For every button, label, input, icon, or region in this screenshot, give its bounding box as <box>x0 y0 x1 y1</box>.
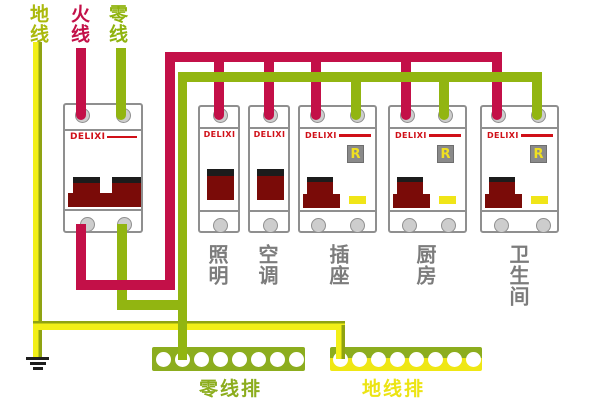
live-wire-in <box>76 48 86 120</box>
divider <box>65 129 141 131</box>
label-aircon: 空调 <box>256 244 277 286</box>
live-drop-lighting <box>214 62 224 120</box>
wiring-diagram: 地线 火线 零线 DELIXI <box>0 0 600 400</box>
neutral-busbar-label: 零线排 <box>199 374 262 400</box>
brand-text: DELIXI <box>305 131 337 140</box>
status-indicator <box>439 196 456 204</box>
brand-text: DELIXI <box>204 130 236 139</box>
rcd-badge: R <box>347 145 364 163</box>
rcd-badge: R <box>437 145 454 163</box>
ground-wire-vertical <box>33 42 42 357</box>
terminal-bottom-left <box>311 218 326 233</box>
brand-underline <box>521 134 553 137</box>
busbar-hole <box>251 352 266 367</box>
terminal-bottom-right <box>536 218 551 233</box>
busbar-hole <box>194 352 209 367</box>
divider <box>482 210 557 212</box>
busbar-hole <box>390 352 405 367</box>
brand-text: DELIXI <box>395 131 427 140</box>
neutral-wire-out-down <box>117 224 127 308</box>
terminal-bottom <box>213 218 228 233</box>
breaker-aircon[interactable]: DELIXI <box>248 105 290 233</box>
label-lighting: 照明 <box>206 244 227 286</box>
live-drop-bathroom <box>492 52 502 120</box>
label-kitchen: 厨房 <box>414 244 435 286</box>
toggle-upper[interactable] <box>307 182 333 194</box>
earth-symbol-line3 <box>33 367 43 370</box>
toggle-cap <box>257 169 284 176</box>
busbar-hole <box>232 352 247 367</box>
terminal-bottom <box>263 218 278 233</box>
live-wire-out-right <box>76 280 175 290</box>
busbar-hole <box>466 352 481 367</box>
divider <box>300 210 375 212</box>
busbar-hole <box>270 352 285 367</box>
divider <box>200 210 238 212</box>
neutral-drop-bathroom <box>532 72 542 120</box>
brand-underline <box>429 134 461 137</box>
live-wire-riser <box>165 52 175 290</box>
busbar-hole <box>352 352 367 367</box>
busbar-hole <box>156 352 171 367</box>
status-indicator <box>349 196 366 204</box>
busbar-hole <box>213 352 228 367</box>
neutral-wire-label: 零线 <box>106 4 126 44</box>
divider <box>250 127 288 129</box>
neutral-riser-and-busbar-feed <box>178 72 187 360</box>
live-drop-kitchen <box>401 62 411 120</box>
main-breaker[interactable]: DELIXI <box>63 103 143 233</box>
toggle-upper[interactable] <box>397 182 423 194</box>
main-toggle-base[interactable] <box>68 193 141 207</box>
breaker-socket[interactable]: DELIXI R <box>298 105 377 233</box>
busbar-hole <box>447 352 462 367</box>
ground-wire-label: 地线 <box>27 4 47 44</box>
toggle-cap <box>207 169 234 176</box>
live-wire-out-down <box>76 224 86 286</box>
terminal-bottom-left <box>494 218 509 233</box>
busbar-hole <box>371 352 386 367</box>
toggle[interactable] <box>207 176 234 200</box>
brand-underline <box>339 134 371 137</box>
label-bathroom: 卫生间 <box>507 244 528 307</box>
neutral-drop-socket <box>351 82 361 120</box>
neutral-wire-in <box>116 48 126 120</box>
divider <box>200 127 238 129</box>
brand-text: DELIXI <box>487 131 519 140</box>
terminal-bottom-left <box>402 218 417 233</box>
live-drop-aircon <box>264 62 274 120</box>
divider <box>390 210 465 212</box>
divider <box>65 209 141 211</box>
brand-text: DELIXI <box>254 130 286 139</box>
divider <box>250 210 288 212</box>
busbar-hole <box>409 352 424 367</box>
status-indicator <box>531 196 548 204</box>
label-socket: 插座 <box>327 244 348 286</box>
toggle-base[interactable] <box>303 194 340 208</box>
breaker-kitchen[interactable]: DELIXI R <box>388 105 467 233</box>
toggle-upper[interactable] <box>489 182 515 194</box>
terminal-bottom-right <box>441 218 456 233</box>
toggle-base[interactable] <box>485 194 522 208</box>
breaker-bathroom[interactable]: DELIXI R <box>480 105 559 233</box>
terminal-bottom-right <box>350 218 365 233</box>
earth-symbol-line2 <box>30 362 46 365</box>
brand-text: DELIXI <box>70 132 105 142</box>
earth-symbol-line1 <box>26 357 49 360</box>
neutral-busbar <box>152 347 305 371</box>
divider <box>390 127 465 129</box>
live-bus <box>165 52 502 62</box>
divider <box>300 127 375 129</box>
ground-busbar <box>330 347 482 371</box>
breaker-lighting[interactable]: DELIXI <box>198 105 240 233</box>
toggle[interactable] <box>257 176 284 200</box>
ground-wire-to-busbar <box>336 325 345 359</box>
neutral-bus <box>178 72 542 82</box>
brand-underline <box>107 136 137 139</box>
busbar-hole <box>289 352 304 367</box>
neutral-drop-kitchen <box>439 82 449 120</box>
neutral-wire-out-right <box>117 300 187 310</box>
ground-busbar-label: 地线排 <box>362 374 425 400</box>
live-wire-label: 火线 <box>68 4 88 44</box>
divider <box>482 127 557 129</box>
busbar-hole <box>428 352 443 367</box>
ground-wire-horizontal <box>33 321 345 330</box>
toggle-base[interactable] <box>393 194 430 208</box>
live-drop-socket <box>311 62 321 120</box>
rcd-badge: R <box>530 145 547 163</box>
